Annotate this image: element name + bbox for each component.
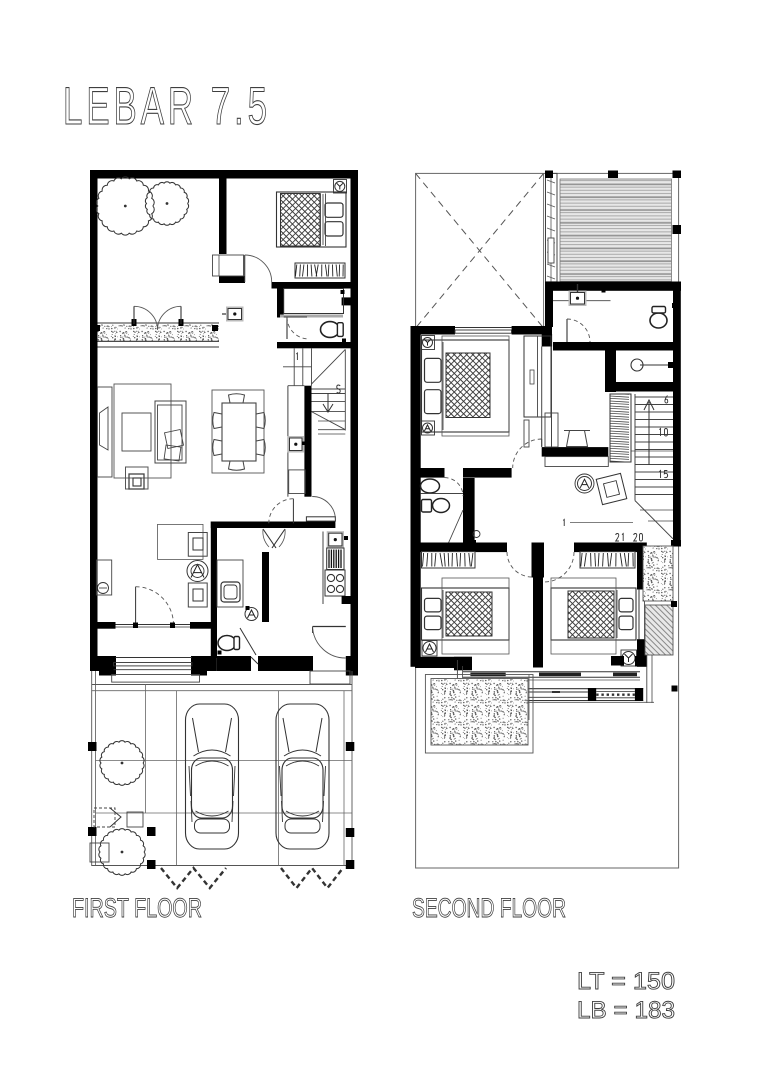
svg-text:LEBAR 7.5: LEBAR 7.5 [63, 77, 271, 136]
svg-text:SECOND FLOOR: SECOND FLOOR [412, 893, 566, 923]
svg-text:FIRST FLOOR: FIRST FLOOR [72, 893, 202, 923]
svg-text:LT = 150: LT = 150 [577, 968, 675, 995]
svg-text:LB = 183: LB = 183 [577, 997, 675, 1024]
